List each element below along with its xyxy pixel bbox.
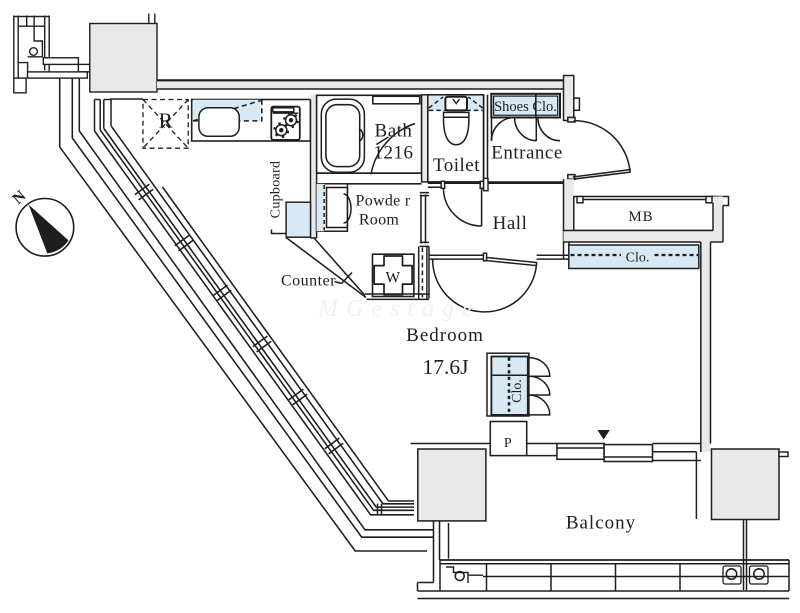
svg-text:17.6J: 17.6J: [423, 355, 469, 379]
svg-text:Cupboard: Cupboard: [269, 161, 284, 219]
svg-text:Clo.: Clo.: [510, 379, 525, 403]
svg-text:Room: Room: [359, 212, 400, 229]
svg-text:MGestage: MGestage: [317, 296, 481, 322]
svg-text:Toilet: Toilet: [433, 155, 480, 176]
svg-text:Counter: Counter: [281, 273, 336, 290]
svg-text:W: W: [385, 269, 400, 286]
svg-text:Clo.: Clo.: [626, 251, 650, 266]
svg-text:P: P: [504, 436, 512, 451]
svg-text:Hall: Hall: [493, 213, 528, 234]
svg-text:1216: 1216: [374, 143, 414, 164]
svg-text:R: R: [159, 109, 173, 133]
svg-text:Entrance: Entrance: [491, 143, 563, 164]
svg-text:Shoes Clo.: Shoes Clo.: [494, 99, 557, 115]
svg-text:Powde r: Powde r: [356, 193, 411, 210]
svg-text:Bath: Bath: [375, 121, 413, 142]
svg-text:Balcony: Balcony: [566, 513, 636, 534]
svg-text:MB: MB: [628, 209, 653, 225]
svg-text:Bedroom: Bedroom: [406, 325, 484, 346]
